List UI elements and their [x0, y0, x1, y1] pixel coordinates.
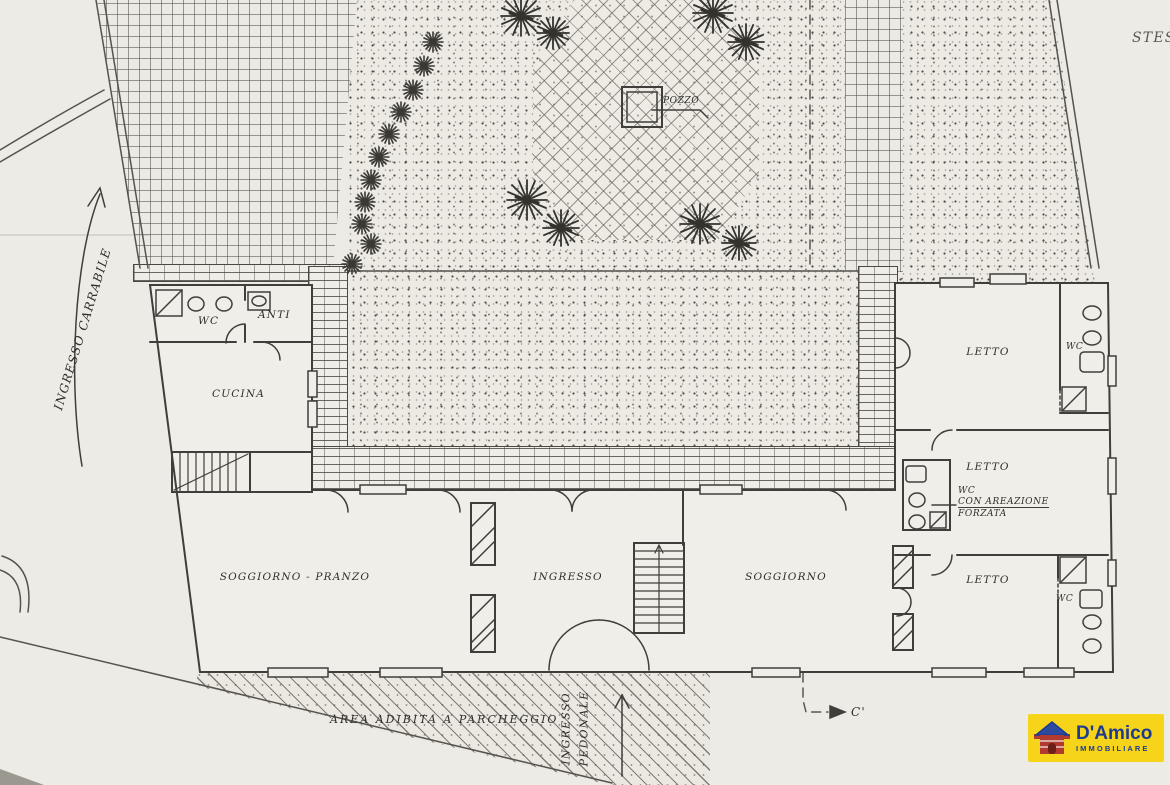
label-pedonale-1: INGRESSO: [560, 679, 573, 779]
label-wc-mid-2: CON AREAZIONE: [958, 497, 1049, 508]
label-section-c: C': [851, 705, 866, 719]
shrub-row: [342, 32, 443, 274]
building-walls: [150, 283, 1113, 672]
label-cucina: CUCINA: [212, 388, 265, 400]
label-letto-bottom: LETTO: [948, 574, 1028, 586]
floor-plan: STESS INGRESSO CARRABILE POZZO WC ANTI C…: [0, 0, 1170, 785]
label-wc-mid-1: WC: [958, 486, 975, 496]
section-arrow: [830, 706, 845, 718]
house-icon: [1032, 719, 1072, 757]
label-soggiorno-pranzo: SOGGIORNO - PRANZO: [205, 571, 385, 583]
well-pozzo: [622, 87, 708, 127]
label-pedonale-2: PEDONALE: [578, 679, 591, 779]
logo-brand: D'Amico: [1076, 724, 1152, 743]
label-ingresso: INGRESSO: [518, 571, 618, 583]
label-wc-mid-3: FORZATA: [958, 509, 1007, 519]
palm-trees: [501, 0, 764, 260]
plan-linework: [0, 0, 1170, 785]
label-wc-top: WC: [1066, 342, 1083, 352]
label-wc-service: WC: [198, 315, 219, 327]
agency-logo: D'Amico IMMOBILIARE: [1028, 714, 1164, 762]
pedestrian-arrow: [615, 695, 629, 776]
label-letto-top: LETTO: [948, 346, 1028, 358]
label-stess: STESS: [1132, 30, 1170, 46]
label-anti: ANTI: [258, 309, 291, 321]
label-pozzo: POZZO: [663, 96, 699, 106]
label-parking: AREA ADIBITA A PARCHEGGIO: [330, 713, 545, 726]
label-wc-bottom: WC: [1056, 594, 1073, 604]
label-letto-mid: LETTO: [948, 461, 1028, 473]
label-soggiorno: SOGGIORNO: [736, 571, 836, 583]
logo-subtitle: IMMOBILIARE: [1076, 745, 1152, 753]
